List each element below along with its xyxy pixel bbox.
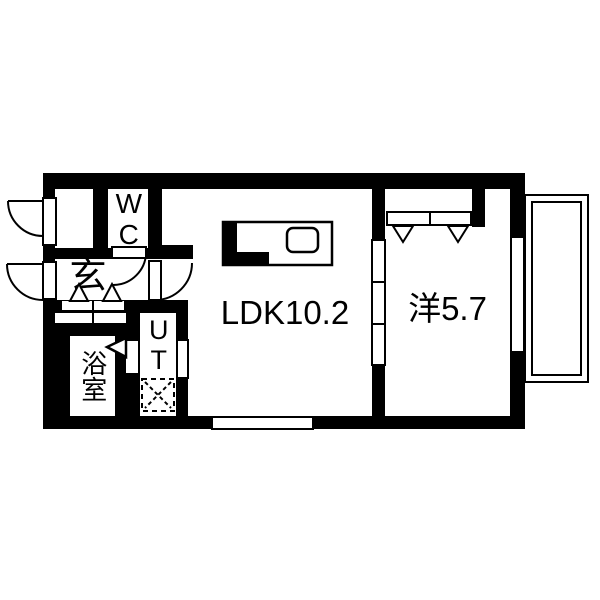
balcony-label: バルコニー [536, 204, 566, 376]
storage-door-arc [8, 201, 43, 236]
ldk-room-label: LDK10.2 [190, 294, 380, 332]
western-room-label: 洋5.7 [385, 290, 510, 328]
wc-room-label: WC [108, 190, 148, 247]
entrance-room-label: 玄 [66, 256, 110, 296]
closet-side-wall [472, 189, 485, 227]
storage-room-floor [55, 189, 93, 248]
floorplan-canvas: WC 玄 浴室 UT LDK10.2 洋5.7 バルコニー [0, 0, 600, 600]
bathroom-room-label: 浴室 [70, 337, 115, 414]
entrance-door-arc [7, 264, 43, 300]
entrance-step-upper-divider [92, 301, 94, 310]
ldk-floor-upper [162, 189, 372, 245]
entrance-step-lower [55, 313, 126, 323]
utility-room-label: UT [140, 314, 176, 376]
entrance-step-lower-divider [92, 313, 94, 323]
ldk-floor-mid [193, 245, 372, 259]
